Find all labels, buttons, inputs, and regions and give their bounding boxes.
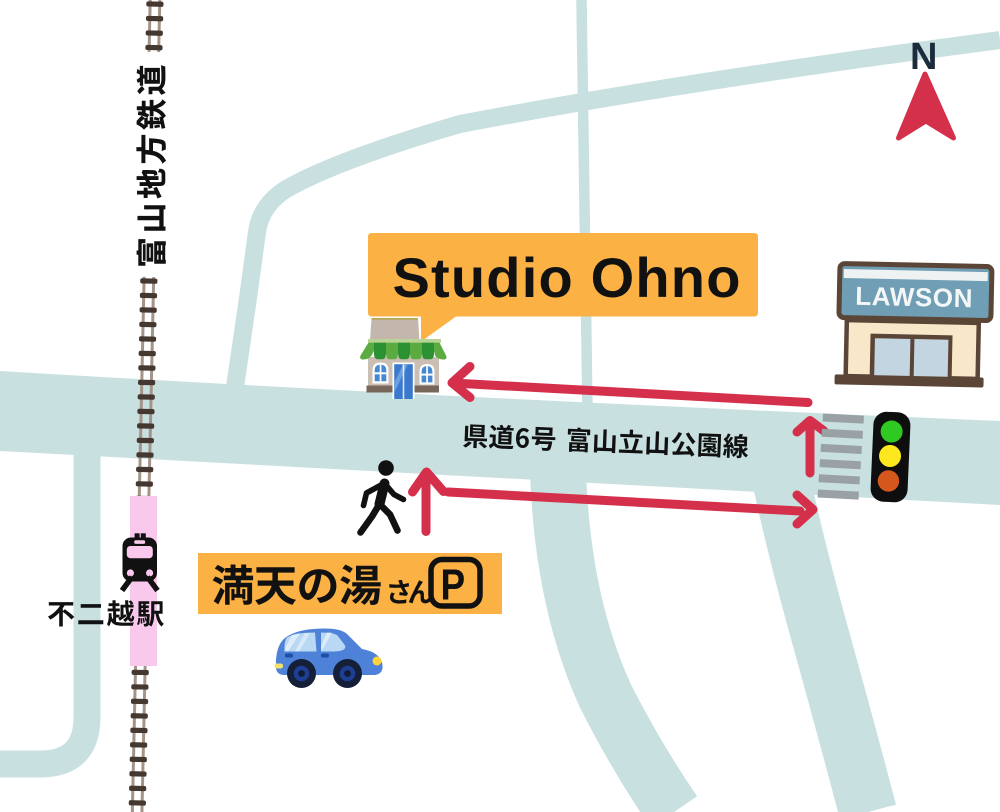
svg-text:LAWSON: LAWSON: [855, 281, 973, 313]
svg-text:Studio Ohno: Studio Ohno: [393, 246, 742, 309]
svg-text:P: P: [441, 559, 466, 609]
svg-text:N: N: [910, 36, 937, 78]
